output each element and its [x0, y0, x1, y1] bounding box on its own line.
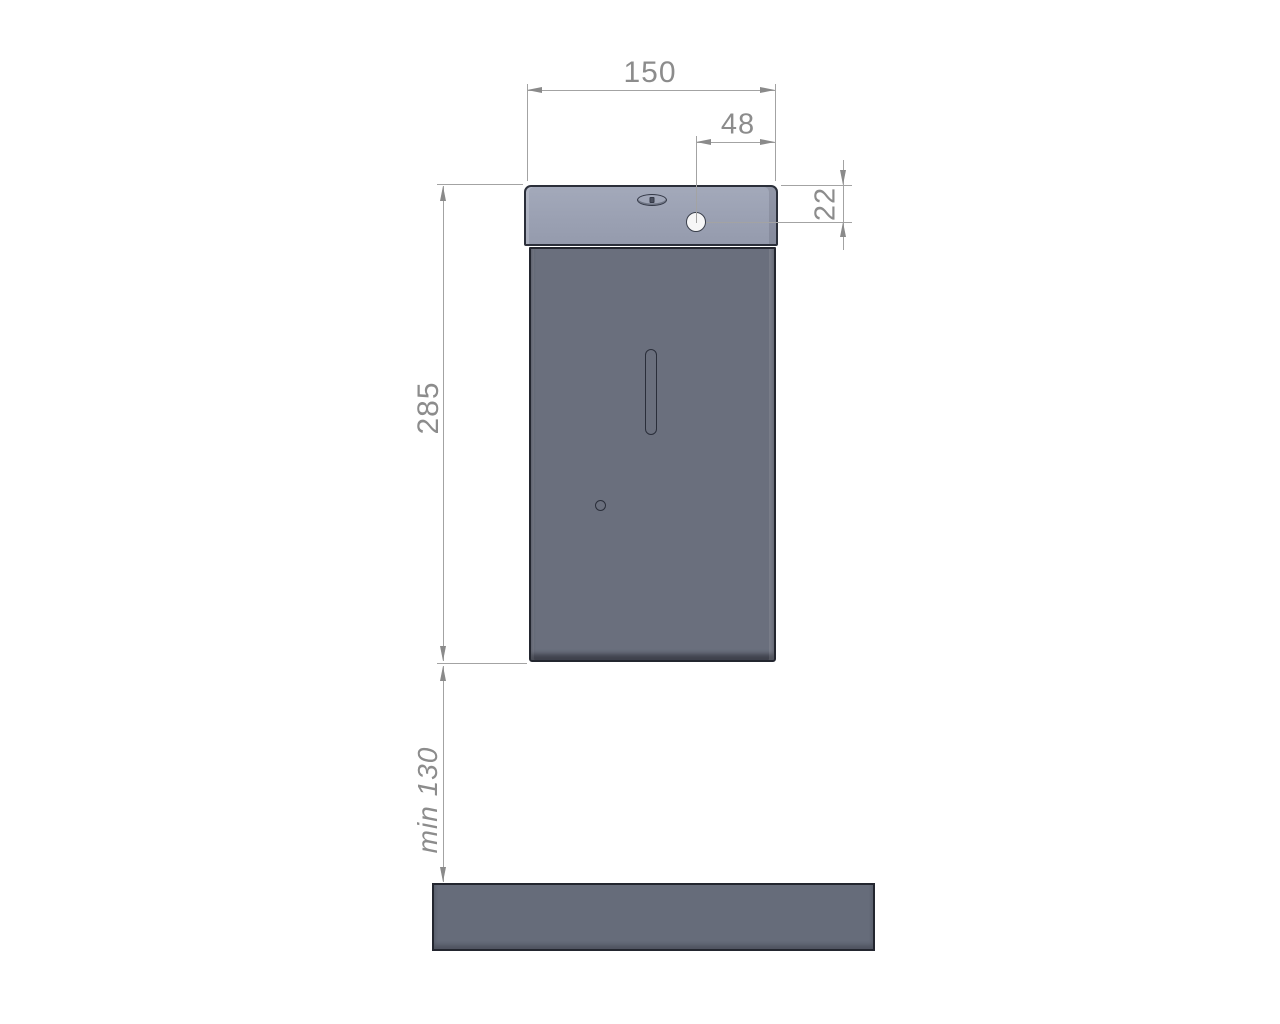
extension-line	[706, 222, 852, 223]
extension-line	[437, 184, 523, 185]
lock-pin-icon	[650, 197, 655, 203]
arrowhead-down-icon	[840, 170, 846, 185]
extension-line	[527, 84, 528, 181]
dimension-label-hole-offset-x: 48	[721, 111, 755, 140]
arrowhead-up-icon	[440, 186, 446, 201]
arrowhead-left-icon	[527, 87, 542, 93]
extension-line	[775, 84, 776, 181]
arrowhead-left-icon	[696, 139, 711, 145]
arrowhead-right-icon	[760, 139, 775, 145]
lock-icon	[637, 194, 667, 206]
arrowhead-down-icon	[440, 867, 446, 882]
dimension-label-hole-offset-y: 22	[812, 187, 841, 221]
arrowhead-up-icon	[440, 666, 446, 681]
dimension-label-height: 285	[414, 381, 444, 434]
arrowhead-up-icon	[840, 222, 846, 237]
extension-line	[437, 663, 527, 664]
sight-window	[645, 349, 657, 435]
dimension-label-width: 150	[623, 58, 676, 88]
sensor-dot	[595, 500, 606, 511]
dimension-line	[443, 666, 444, 882]
dimension-line	[527, 90, 775, 91]
counter-surface	[432, 883, 875, 951]
arrowhead-right-icon	[760, 87, 775, 93]
dispenser-body	[529, 247, 776, 662]
extension-line	[781, 185, 852, 186]
drawing-canvas: 150 48 22 285 min 130	[0, 0, 1280, 1024]
arrowhead-down-icon	[440, 646, 446, 661]
dimension-label-clearance: min 130	[414, 747, 442, 854]
extension-line	[696, 136, 697, 223]
